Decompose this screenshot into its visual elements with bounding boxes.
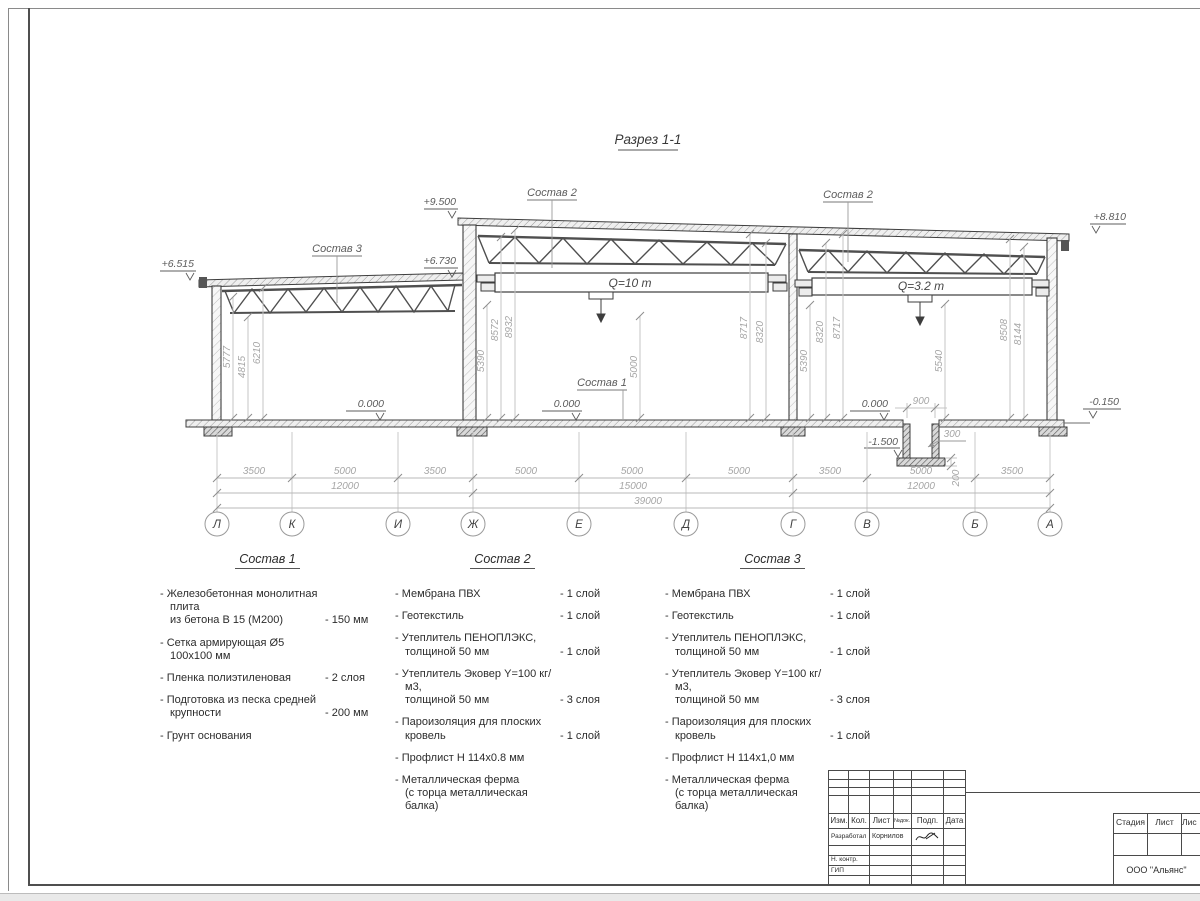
composition-item: - Утеплитель Эковер Y=100 кг/м3, толщино… [395, 668, 610, 708]
axis-label: В [863, 519, 871, 531]
tb-role-ncontrol: Н. контр. [831, 856, 858, 863]
tb-role-developer: Разработал [831, 833, 866, 840]
truss-aux-bay [799, 250, 1045, 274]
tb-sheet: Лист [1148, 817, 1181, 827]
composition-title: Состав 3 [665, 552, 880, 566]
vertical-dimensions: 5777 4815 6210 5390 8572 8932 5000 8717 … [222, 226, 1028, 422]
drawing-sheet: Разрез 1-1 [0, 0, 1200, 900]
label-sostav-3: Состав 3 [312, 243, 363, 255]
composition-item: - Пленка полиэтиленовая- 2 слоя [160, 672, 375, 685]
wall-axis-a [1047, 238, 1057, 420]
tb-sheets: Лис [1182, 817, 1200, 827]
bay-dim: 12000 [907, 481, 935, 492]
crane-capacity-main: Q=10 т [608, 276, 651, 290]
axis-bubbles: Л К И Ж Е Д Г В Б А [205, 512, 1062, 536]
pit-wall-dim: 300 [944, 429, 961, 440]
tb-name-developer: Корнилов [872, 833, 903, 840]
vdim: 5777 [222, 345, 233, 368]
wall-axis-l [212, 286, 221, 420]
span-dim: 5000 [515, 466, 538, 477]
tb-col-podp: Подп. [912, 816, 943, 825]
axis-label: Е [575, 519, 583, 531]
elev-zero-2: 0.000 [554, 398, 580, 410]
vdim: 8717 [739, 316, 750, 339]
roof-high-end-cap [1061, 240, 1069, 251]
column-axis-g [789, 234, 797, 420]
truss-low-bay [222, 285, 462, 313]
crane-beam-aux: Q=3.2 т [795, 278, 1049, 296]
tb-col-list: Лист [870, 816, 893, 825]
crane-pit [897, 424, 945, 466]
span-dim: 3500 [819, 466, 842, 477]
elev-9500: +9.500 [424, 196, 457, 208]
composition-item: - Геотекстиль- 1 слой [395, 610, 610, 623]
floor-slab [186, 420, 1090, 427]
tb-role-gip: ГИП [831, 867, 844, 874]
vdim: 8932 [504, 315, 515, 338]
bay-dim: 15000 [619, 481, 647, 492]
composition-item: - Профлист Н 114х0.8 мм [395, 752, 610, 765]
span-dim: 5000 [334, 466, 357, 477]
composition-item: - Металлическая ферма (с торца металличе… [395, 774, 610, 814]
label-sostav-1: Состав 1 [577, 377, 627, 389]
span-dim: 3500 [243, 466, 266, 477]
span-dim: 5000 [621, 466, 644, 477]
crane-hook-main [589, 292, 613, 322]
vdim: 8717 [832, 316, 843, 339]
label-sostav-2-left: Состав 2 [527, 187, 577, 199]
elev-zero-3: 0.000 [862, 398, 888, 410]
tb-col-ndok: №док. [893, 818, 911, 824]
vdim: 8320 [815, 320, 826, 343]
composition-item: - Подготовка из песка средней крупности-… [160, 694, 375, 720]
section-drawing: Разрез 1-1 [0, 0, 1200, 560]
composition-item: - Утеплитель Эковер Y=100 кг/м3, толщино… [665, 668, 880, 708]
elev-minus-1500: -1.500 [868, 436, 898, 448]
composition-item: - Утеплитель ПЕНОПЛЭКС, толщиной 50 мм- … [665, 632, 880, 658]
span-dim: 5000 [910, 466, 933, 477]
frame-inner-bottom [28, 884, 1200, 886]
label-sostav-2-right: Состав 2 [823, 189, 873, 201]
span-dim: 5000 [728, 466, 751, 477]
composition-title: Состав 1 [160, 552, 375, 566]
section-title-text: Разрез 1-1 [615, 132, 682, 147]
composition-list-2: Состав 2 - Мембрана ПВХ- 1 слой - Геотек… [395, 552, 610, 822]
axis-label: А [1045, 519, 1054, 531]
elev-zero-1: 0.000 [358, 398, 384, 410]
composition-item: - Пароизоляция для плоских кровель- 1 сл… [395, 716, 610, 742]
composition-item: - Мембрана ПВХ- 1 слой [395, 588, 610, 601]
axis-label: Г [790, 519, 797, 531]
roof-low-end-cap [199, 277, 207, 288]
composition-title: Состав 2 [395, 552, 610, 566]
vdim: 5540 [934, 349, 945, 372]
crane-beam-main: Q=10 т [477, 273, 787, 292]
pit-width-dim: 900 [913, 396, 930, 407]
composition-item: - Сетка армирующая Ø5 100х100 мм [160, 637, 375, 663]
wall-axis-zh [463, 225, 476, 420]
composition-item: - Профлист Н 114х1,0 мм [665, 752, 880, 765]
tb-col-izm: Изм. [830, 816, 848, 825]
vdim: 4815 [237, 355, 248, 378]
composition-item: - Мембрана ПВХ- 1 слой [665, 588, 880, 601]
crane-hook-aux [908, 295, 932, 325]
vdim: 6210 [252, 341, 263, 364]
section-title: Разрез 1-1 [615, 132, 682, 150]
tb-col-data: Дата [944, 816, 965, 825]
composition-item: - Грунт основания [160, 730, 375, 743]
composition-item: - Геотекстиль- 1 слой [665, 610, 880, 623]
span-dim: 3500 [1001, 466, 1024, 477]
bay-dim: 12000 [331, 481, 359, 492]
composition-item: - Железобетонная монолитная плита из бет… [160, 588, 375, 628]
signature [913, 830, 943, 844]
vdim: 8572 [490, 318, 501, 341]
elev-6515: +6.515 [162, 258, 195, 270]
elev-6730: +6.730 [424, 255, 457, 267]
tb-stage: Стадия [1114, 817, 1147, 827]
axis-label: Д [680, 519, 690, 531]
vdim: 8320 [755, 320, 766, 343]
span-dim: 3500 [424, 466, 447, 477]
elev-minus-0150: -0.150 [1089, 396, 1119, 408]
truss-main-bay [478, 236, 786, 265]
crane-capacity-aux: Q=3.2 т [898, 279, 944, 293]
vdim: 5000 [629, 355, 640, 378]
composition-item: - Пароизоляция для плоских кровель- 1 сл… [665, 716, 880, 742]
axis-label: И [394, 519, 403, 531]
axis-label: Ж [467, 519, 480, 531]
tb-col-kol: Кол. [849, 816, 869, 825]
bottom-dimensions: 3500 5000 3500 5000 5000 5000 3500 5000 … [213, 432, 1054, 512]
composition-list-1: Состав 1 - Железобетонная монолитная пли… [160, 552, 375, 752]
vdim: 8144 [1013, 322, 1024, 345]
axis-label: Б [971, 519, 979, 531]
vdim: 8508 [999, 318, 1010, 341]
elev-8810: +8.810 [1094, 211, 1127, 223]
total-dim: 39000 [634, 496, 662, 507]
axis-label: Л [212, 519, 221, 531]
tb-company: ООО "Альянс" [1113, 865, 1200, 875]
vdim: 5390 [799, 349, 810, 372]
vdim: 5390 [476, 349, 487, 372]
composition-item: - Утеплитель ПЕНОПЛЭКС, толщиной 50 мм- … [395, 632, 610, 658]
